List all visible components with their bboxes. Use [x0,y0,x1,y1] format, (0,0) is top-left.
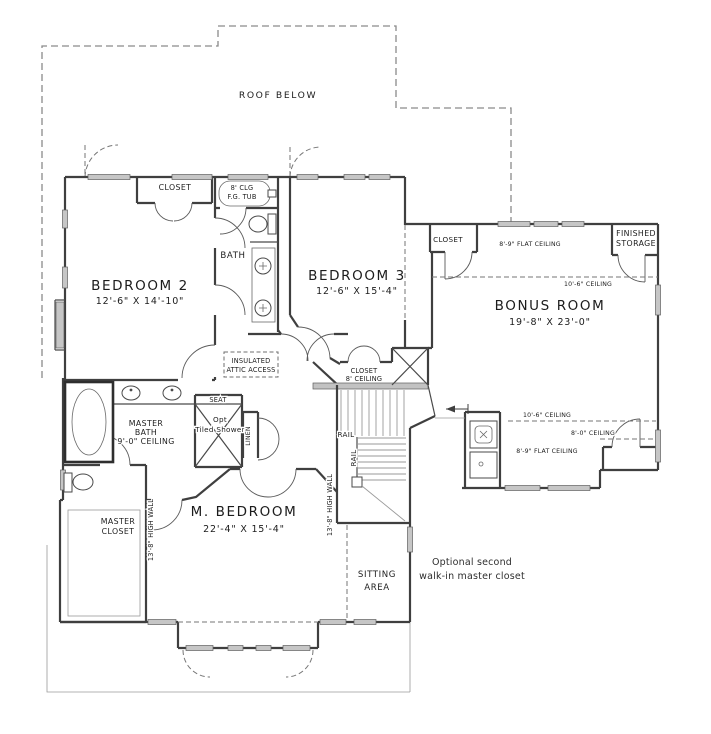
ceiling-low-label: 8'-0" CEILING [571,430,615,437]
optional-closet-note-1: Optional second [432,557,512,568]
toilet-tank [64,473,72,492]
rail-label-2: RAIL [349,450,358,467]
storage-label-1: FINISHED [616,229,656,238]
sitting-area-label-1: SITTING [358,570,396,580]
storage-label-2: STORAGE [616,239,656,248]
room-dims-bedroom2: 12'-6" X 14'-10" [96,296,184,307]
ceiling-lines [178,277,658,622]
stairs [341,390,468,521]
seat-label: SEAT [209,396,227,404]
attic-access-label-2: ATTIC ACCESS [226,366,275,374]
closet-label-bonus: CLOSET [433,235,463,244]
high-wall-label-1: 13'-8" HIGH WALL [326,474,334,536]
ceiling-flat-bottom-label: 8'-9" FLAT CEILING [516,448,578,455]
attic-access-label-1: INSULATED [232,357,271,365]
master-bath-label-1: MASTER [129,419,164,428]
room-label-bedroom2: BEDROOM 2 [91,278,189,294]
utility-cabinet [470,452,497,478]
floor-plan-page: ROOF BELOW BEDROOM 2 12'-6" X 14'-10" BE… [0,0,711,734]
master-bath-label-3: 9'-0" CEILING [117,437,174,446]
floor-plan-drawing: ROOF BELOW BEDROOM 2 12'-6" X 14'-10" BE… [0,0,711,734]
ceiling-main-top-label: 10'-6" CEILING [564,281,612,288]
closet-hall-label-2: 8' CEILING [346,375,382,383]
master-closet-label-1: MASTER [101,517,136,526]
bath-label: BATH [220,251,245,261]
fixtures [64,181,497,616]
toilet-bowl [249,216,267,232]
sink [122,386,140,400]
roof-outline [42,26,511,692]
toilet-tank [268,214,276,234]
optional-closet-note-2: walk-in master closet [419,571,525,582]
closet-label-bedroom2: CLOSET [159,183,192,192]
rail-label-1: RAIL [338,430,355,439]
room-label-bonus: BONUS ROOM [495,298,606,314]
ceiling-main-bottom-label: 10'-6" CEILING [523,412,571,419]
room-dims-bonus: 19'-8" X 23'-0" [509,317,591,328]
sink [163,386,181,400]
shower-label-2: Tiled Shower [194,425,245,434]
master-bath-label-2: BATH [135,428,157,437]
high-wall-label-2: 13'-8" HIGH WALL [147,499,155,561]
ceiling-flat-top-label: 8'-9" FLAT CEILING [499,241,561,248]
closet-front-hatch [313,383,428,389]
stair-newel [352,477,362,487]
tub-label-1: 8' CLG [231,184,254,192]
master-closet-label-2: CLOSET [102,527,135,536]
room-label-bedroom3: BEDROOM 3 [308,268,406,284]
sitting-area-label-2: AREA [364,583,390,593]
room-dims-bedroom3: 12'-6" X 15'-4" [316,286,398,297]
shower-label-1: Opt [213,415,227,424]
linen-label: LINEN [245,426,252,446]
room-label-master-bedroom: M. BEDROOM [191,504,298,520]
toilet-bowl [73,474,93,490]
room-dims-master-bedroom: 22'-4" X 15'-4" [203,524,285,535]
tub-label-2: F.G. TUB [227,193,256,201]
closet-hall-label-1: CLOSET [351,367,379,375]
tub-faucet [268,190,276,197]
roof-below-label: ROOF BELOW [239,90,317,101]
